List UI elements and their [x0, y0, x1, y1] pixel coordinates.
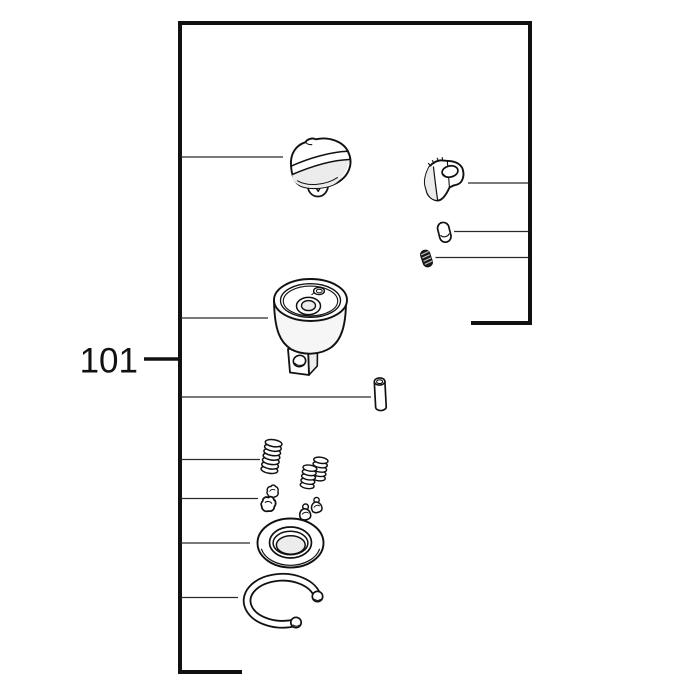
callout-group: 101	[80, 342, 179, 381]
cap-icon	[291, 138, 351, 196]
pawl-pair-icon	[298, 497, 323, 521]
leader-lines	[181, 157, 529, 598]
pawl-icon	[260, 484, 279, 512]
anvil-icon	[274, 279, 347, 375]
pawl-spring-pair-icon	[300, 456, 329, 489]
retaining-ring-icon	[247, 577, 323, 627]
detent-pin-icon	[436, 221, 452, 243]
pawl-spring-icon	[261, 438, 283, 474]
detent-spring-icon	[419, 249, 433, 268]
anvil-pin-hole	[314, 287, 325, 294]
reverse-lever-icon	[425, 158, 464, 201]
washer-icon	[258, 519, 324, 568]
parts-diagram-page: 101	[0, 0, 700, 700]
pin-icon	[374, 378, 386, 411]
frame-border	[180, 23, 530, 672]
callout-label: 101	[80, 342, 138, 381]
exploded-parts-diagram: 101	[0, 0, 700, 700]
